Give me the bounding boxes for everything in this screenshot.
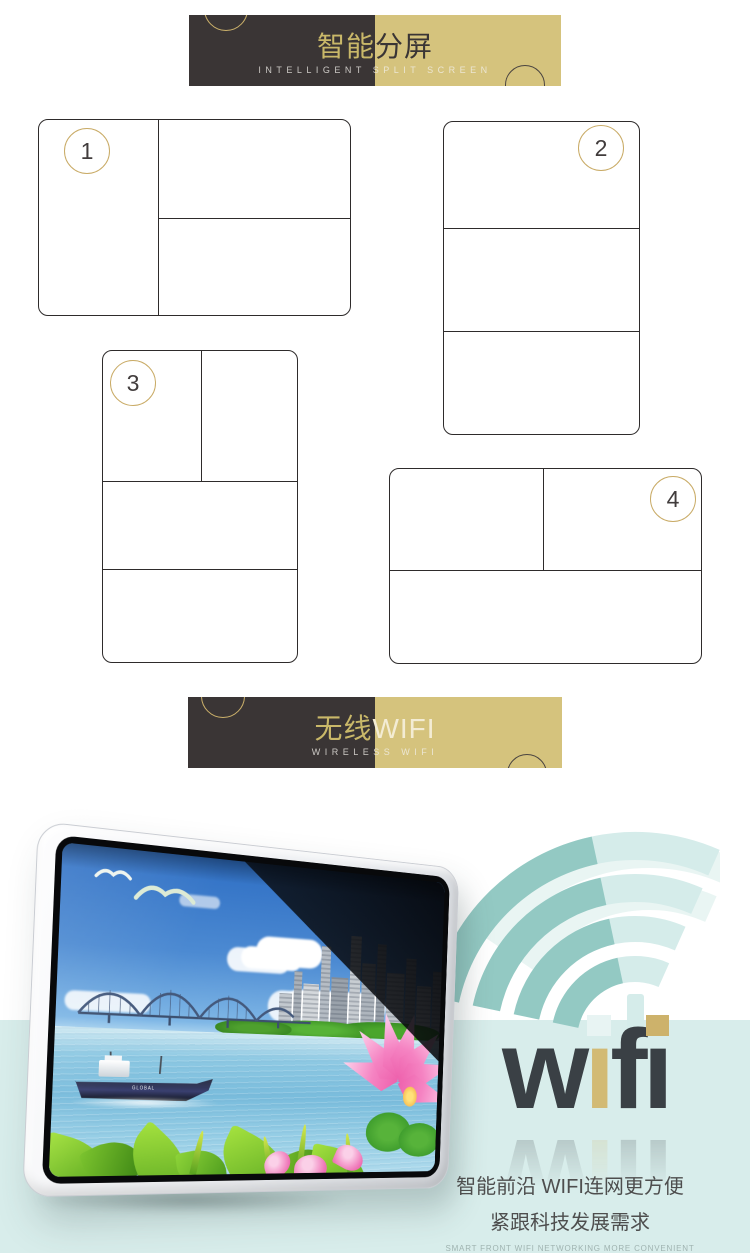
split-layout-diagram-3: 3 [102,350,298,663]
divider-line [103,569,297,570]
banner-intelligent-split-screen: 智能分屏 INTELLIGENT SPLIT SCREEN [189,15,561,86]
diagram-number: 4 [667,486,680,513]
divider-line [201,351,202,481]
diagram-number-badge: 4 [650,476,696,522]
display-bezel: GLOBAL [42,835,450,1184]
divider-line [390,570,701,571]
diagram-number: 1 [81,138,94,165]
divider-line [158,218,350,219]
banner-content: 无线WIFI WIRELESS WIFI [188,697,562,768]
wifi-letter-w: w [502,1014,584,1126]
divider-line [444,228,639,229]
diagram-number-badge: 3 [110,360,156,406]
wall-mounted-display: GLOBAL [22,821,459,1198]
caption-en-1: SMART FRONT WIFI NETWORKING MORE CONVENI… [350,1244,750,1253]
split-layout-diagram-4: 4 [389,468,702,664]
divider-line [103,481,297,482]
banner-subtitle: INTELLIGENT SPLIT SCREEN [258,65,491,75]
banner-title: 智能分屏 [317,32,433,63]
diagram-number: 3 [127,370,140,397]
wifi-logo: wıfı [502,1014,669,1126]
banner-title-right: WIFI [372,713,435,744]
split-layout-diagram-2: 2 [443,121,640,435]
display-screen: GLOBAL [49,842,445,1177]
wifi-i-dot-light [587,1015,611,1036]
wifi-letter-f: f [610,1014,642,1126]
split-layout-diagram-1: 1 [38,119,351,316]
divider-line [543,469,544,570]
caption-line-2: 紧跟科技发展需求 [350,1206,750,1235]
banner-title: 无线WIFI [314,714,435,745]
wifi-letter-i2: ı [643,1014,669,1126]
banner-title-right: 分屏 [375,31,433,62]
diagram-number-badge: 2 [578,125,624,171]
diagram-number: 2 [595,135,608,162]
product-poster-page: 智能分屏 INTELLIGENT SPLIT SCREEN 1 2 3 4 无线… [0,0,750,1253]
wifi-i-dot-gold [646,1015,670,1036]
banner-content: 智能分屏 INTELLIGENT SPLIT SCREEN [189,15,561,86]
wifi-letter-i1: ı [584,1014,610,1126]
banner-subtitle: WIRELESS WIFI [312,747,439,757]
caption-block: 智能前沿 WIFI连网更方便 紧跟科技发展需求 SMART FRONT WIFI… [350,1170,750,1253]
caption-line-1: 智能前沿 WIFI连网更方便 [350,1170,750,1199]
banner-wireless-wifi: 无线WIFI WIRELESS WIFI [188,697,562,768]
banner-title-left: 无线 [314,713,372,744]
divider-line [444,331,639,332]
diagram-number-badge: 1 [64,128,110,174]
banner-title-left: 智能 [317,31,375,62]
